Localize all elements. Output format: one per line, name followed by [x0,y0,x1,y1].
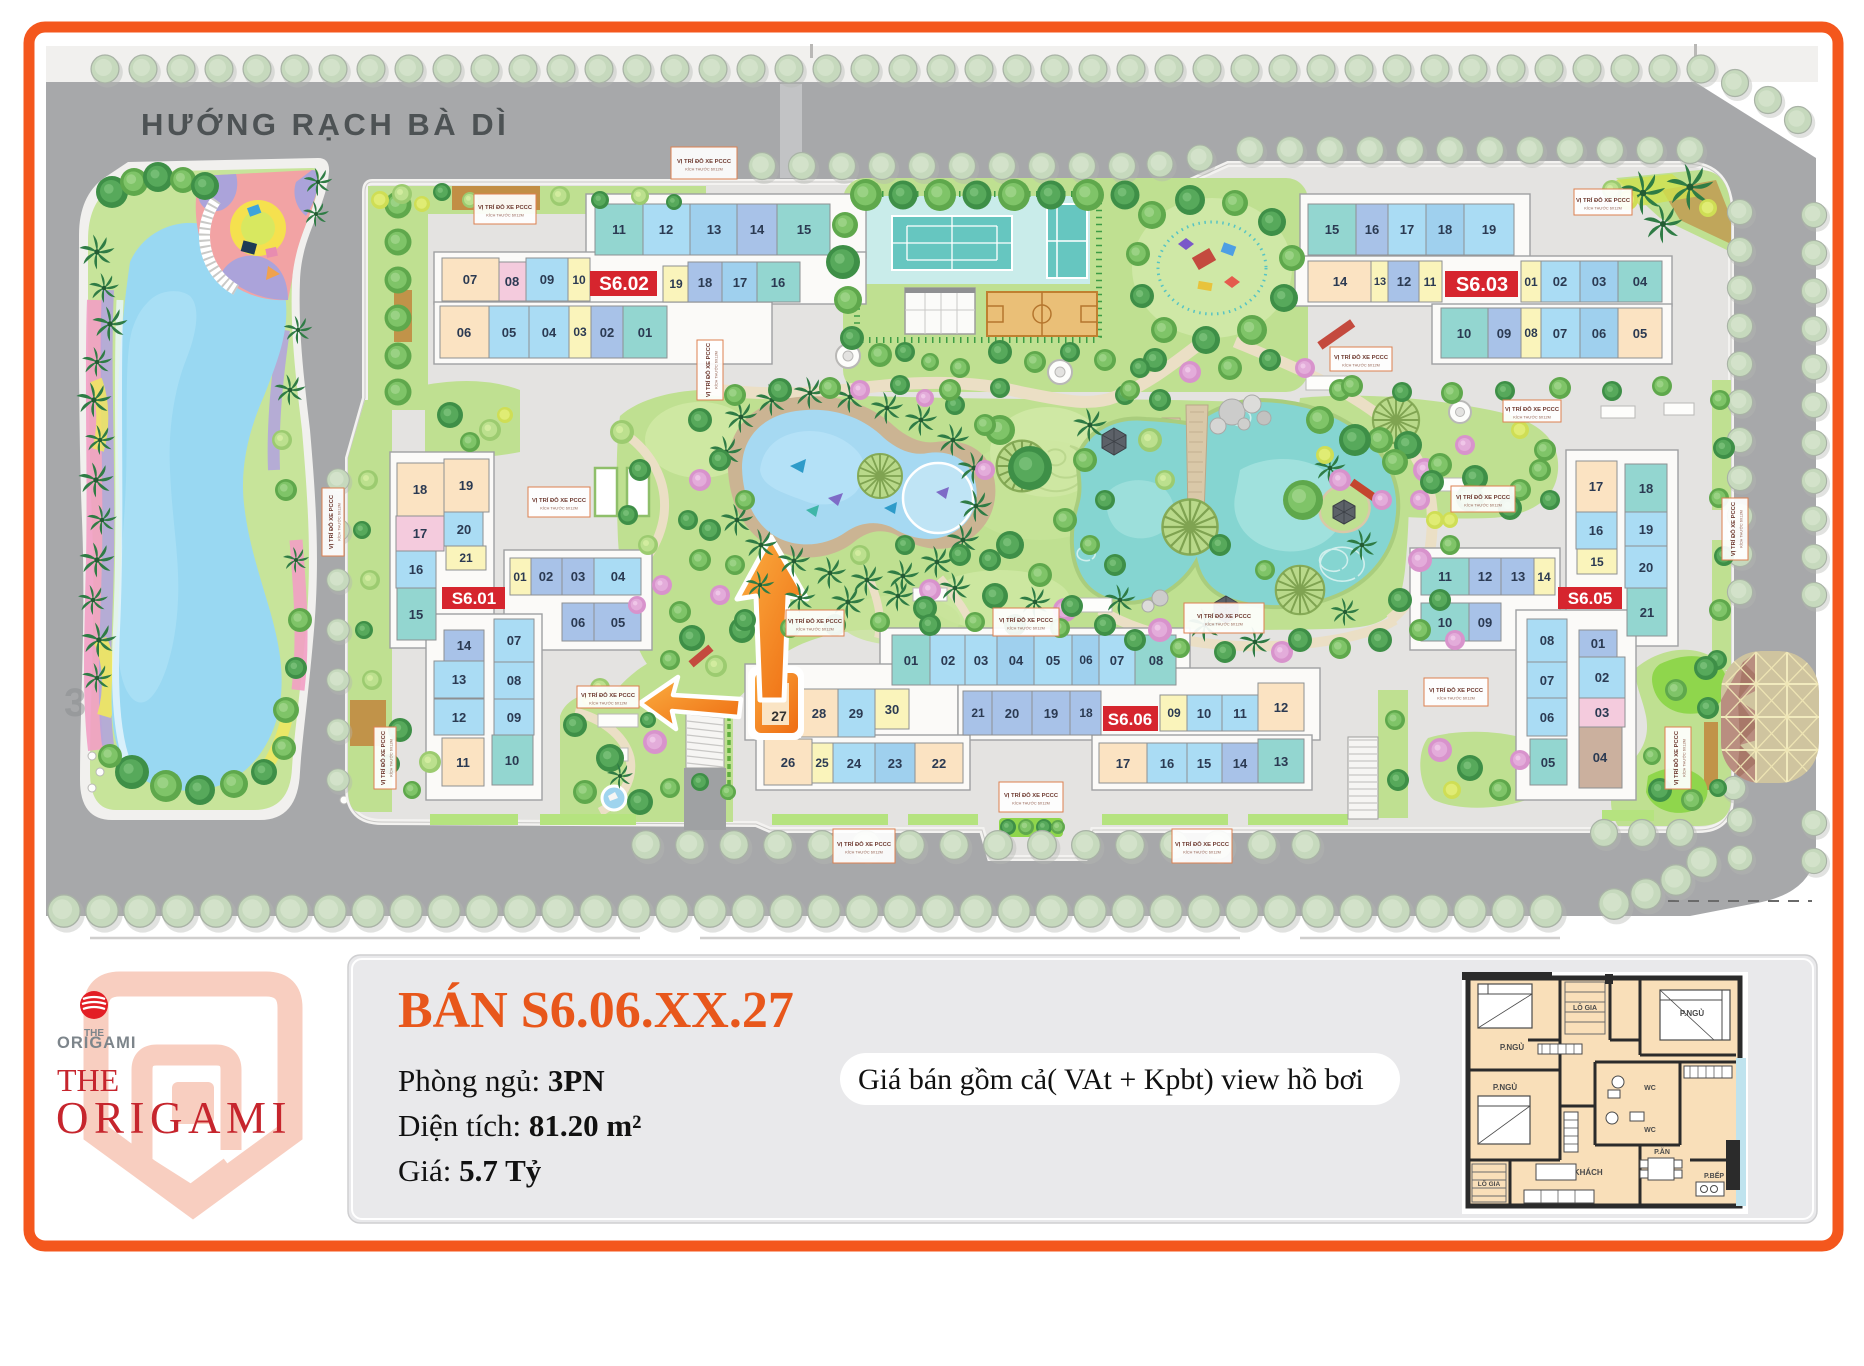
svg-text:01: 01 [1524,275,1538,289]
svg-text:16: 16 [1589,523,1603,538]
svg-text:P.NGỦ: P.NGỦ [1500,1043,1525,1052]
svg-text:02: 02 [600,325,614,340]
svg-text:KÍCH THƯỚC 6X12M: KÍCH THƯỚC 6X12M [337,503,342,540]
svg-text:KÍCH THƯỚC 6X12M: KÍCH THƯỚC 6X12M [845,850,882,855]
svg-text:Giá: 5.7 Tỷ: Giá: 5.7 Tỷ [398,1153,542,1188]
svg-text:VỊ TRÍ ĐỖ XE PCCC: VỊ TRÍ ĐỖ XE PCCC [1505,405,1560,413]
svg-text:LÔ GIA: LÔ GIA [1478,1179,1501,1188]
svg-text:03: 03 [573,325,587,339]
svg-text:01: 01 [513,570,527,584]
svg-text:VỊ TRÍ ĐỖ XE PCCC: VỊ TRÍ ĐỖ XE PCCC [327,494,335,549]
svg-text:19: 19 [1639,522,1653,537]
svg-text:01: 01 [1591,636,1605,651]
svg-text:13: 13 [1511,569,1525,584]
svg-text:KÍCH THƯỚC 6X12M: KÍCH THƯỚC 6X12M [1739,510,1744,547]
svg-text:KÍCH THƯỚC 6X12M: KÍCH THƯỚC 6X12M [1682,739,1687,776]
svg-text:Diện tích: 81.20 m²: Diện tích: 81.20 m² [398,1108,641,1143]
svg-text:19: 19 [669,277,683,291]
svg-text:04: 04 [1633,274,1648,289]
svg-text:10: 10 [1457,326,1471,341]
svg-text:KÍCH THƯỚC 6X12M: KÍCH THƯỚC 6X12M [714,351,719,388]
svg-text:14: 14 [1233,756,1248,771]
svg-text:S6.01: S6.01 [452,589,496,608]
svg-text:13: 13 [1274,754,1288,769]
svg-text:18: 18 [1079,706,1093,720]
svg-text:VỊ TRÍ ĐỖ XE PCCC: VỊ TRÍ ĐỖ XE PCCC [1576,196,1631,204]
svg-text:02: 02 [539,569,553,584]
svg-text:ORIGAMI: ORIGAMI [56,1093,292,1143]
svg-text:05: 05 [1633,326,1647,341]
svg-text:12: 12 [1397,274,1411,289]
svg-text:11: 11 [456,755,470,770]
svg-text:ORIGAMI: ORIGAMI [57,1034,136,1052]
svg-text:16: 16 [1160,756,1174,771]
svg-text:12: 12 [452,710,466,725]
svg-text:VỊ TRÍ ĐỖ XE PCCC: VỊ TRÍ ĐỖ XE PCCC [532,496,587,504]
svg-text:P.NGỦ: P.NGỦ [1493,1083,1518,1092]
svg-text:18: 18 [698,275,712,290]
svg-text:04: 04 [1009,653,1024,668]
svg-text:KÍCH THƯỚC 6X12M: KÍCH THƯỚC 6X12M [1205,622,1242,627]
svg-text:21: 21 [971,706,985,720]
svg-text:19: 19 [1482,222,1496,237]
svg-text:06: 06 [571,615,585,630]
svg-text:VỊ TRÍ ĐỖ XE PCCC: VỊ TRÍ ĐỖ XE PCCC [1197,612,1252,620]
svg-text:13: 13 [707,222,721,237]
svg-text:11: 11 [1438,569,1452,584]
svg-text:17: 17 [1589,479,1603,494]
svg-text:12: 12 [659,222,673,237]
svg-text:02: 02 [941,653,955,668]
svg-text:03: 03 [571,569,585,584]
svg-text:14: 14 [457,638,472,653]
svg-text:KÍCH THƯỚC 6X12M: KÍCH THƯỚC 6X12M [685,167,722,172]
svg-text:09: 09 [1497,326,1511,341]
svg-text:04: 04 [1593,750,1608,765]
svg-text:11: 11 [1233,706,1247,721]
svg-text:03: 03 [974,653,988,668]
svg-text:VỊ TRÍ ĐỖ XE PCCC: VỊ TRÍ ĐỖ XE PCCC [379,730,387,785]
svg-text:06: 06 [457,325,471,340]
svg-text:3: 3 [64,681,86,725]
svg-text:KÍCH THƯỚC 6X12M: KÍCH THƯỚC 6X12M [589,701,626,706]
svg-text:KÍCH THƯỚC 6X12M: KÍCH THƯỚC 6X12M [796,627,833,632]
svg-text:S6.03: S6.03 [1456,274,1508,296]
svg-text:01: 01 [638,325,652,340]
svg-text:VỊ TRÍ ĐỖ XE PCCC: VỊ TRÍ ĐỖ XE PCCC [837,840,892,848]
svg-text:04: 04 [611,569,626,584]
svg-text:S6.02: S6.02 [599,274,649,295]
svg-text:24: 24 [847,756,862,771]
svg-text:05: 05 [1046,653,1060,668]
svg-text:20: 20 [457,522,471,537]
svg-text:07: 07 [463,272,477,287]
svg-text:VỊ TRÍ ĐỖ XE PCCC: VỊ TRÍ ĐỖ XE PCCC [704,342,712,397]
svg-text:HƯỚNG RẠCH BÀ DÌ: HƯỚNG RẠCH BÀ DÌ [141,106,509,142]
svg-text:17: 17 [413,526,427,541]
svg-text:07: 07 [507,633,521,648]
svg-text:02: 02 [1553,274,1567,289]
svg-text:KÍCH THƯỚC 6X12M: KÍCH THƯỚC 6X12M [1513,415,1550,420]
svg-text:VỊ TRÍ ĐỖ XE PCCC: VỊ TRÍ ĐỖ XE PCCC [677,157,732,165]
svg-text:15: 15 [1590,555,1604,569]
svg-text:21: 21 [1640,605,1654,620]
svg-text:VỊ TRÍ ĐỖ XE PCCC: VỊ TRÍ ĐỖ XE PCCC [1672,730,1680,785]
svg-text:15: 15 [1197,756,1211,771]
svg-text:VỊ TRÍ ĐỖ XE PCCC: VỊ TRÍ ĐỖ XE PCCC [1729,501,1737,556]
svg-text:09: 09 [540,272,554,287]
svg-text:30: 30 [885,702,899,717]
svg-text:05: 05 [502,325,516,340]
svg-text:27: 27 [771,708,787,724]
svg-text:14: 14 [750,222,765,237]
svg-text:KÍCH THƯỚC 6X12M: KÍCH THƯỚC 6X12M [1342,363,1379,368]
svg-text:21: 21 [459,551,473,565]
svg-text:VỊ TRÍ ĐỖ XE PCCC: VỊ TRÍ ĐỖ XE PCCC [1334,353,1389,361]
svg-text:KÍCH THƯỚC 6X12M: KÍCH THƯỚC 6X12M [540,506,577,511]
svg-text:28: 28 [812,706,826,721]
svg-text:KÍCH THƯỚC 6X12M: KÍCH THƯỚC 6X12M [486,213,523,218]
svg-text:16: 16 [771,275,785,290]
svg-text:VỊ TRÍ ĐỖ XE PCCC: VỊ TRÍ ĐỖ XE PCCC [999,616,1054,624]
svg-text:KÍCH THƯỚC 6X12M: KÍCH THƯỚC 6X12M [389,739,394,776]
svg-text:14: 14 [1333,274,1348,289]
svg-text:08: 08 [507,673,521,688]
svg-text:18: 18 [1639,481,1653,496]
svg-text:KÍCH THƯỚC 6X12M: KÍCH THƯỚC 6X12M [1584,206,1621,211]
svg-text:VỊ TRÍ ĐỖ XE PCCC: VỊ TRÍ ĐỖ XE PCCC [478,203,533,211]
svg-text:VỊ TRÍ ĐỖ XE PCCC: VỊ TRÍ ĐỖ XE PCCC [581,691,636,699]
svg-text:16: 16 [409,562,423,577]
svg-text:KÍCH THƯỚC 6X12M: KÍCH THƯỚC 6X12M [1183,850,1220,855]
svg-text:KÍCH THƯỚC 6X12M: KÍCH THƯỚC 6X12M [1012,801,1049,806]
svg-text:S6.06: S6.06 [1108,710,1152,729]
svg-text:20: 20 [1639,560,1653,575]
svg-text:03: 03 [1595,705,1609,720]
svg-text:16: 16 [1365,222,1379,237]
svg-text:23: 23 [888,756,902,771]
svg-text:06: 06 [1592,326,1606,341]
svg-text:09: 09 [1478,615,1492,630]
svg-text:WC: WC [1644,1127,1656,1134]
svg-text:11: 11 [1424,275,1437,289]
svg-text:P.ĂN: P.ĂN [1654,1147,1670,1156]
svg-text:05: 05 [611,615,625,630]
svg-text:04: 04 [542,325,557,340]
svg-text:Giá bán gồm cả( VAt + Kpbt) vi: Giá bán gồm cả( VAt + Kpbt) view hồ bơi [858,1063,1364,1096]
svg-text:01: 01 [904,653,918,668]
svg-text:KÍCH THƯỚC 6X12M: KÍCH THƯỚC 6X12M [1464,503,1501,508]
svg-text:S6.05: S6.05 [1568,589,1612,608]
svg-text:06: 06 [1079,653,1093,667]
svg-text:18: 18 [1438,222,1452,237]
svg-text:15: 15 [797,222,811,237]
svg-text:15: 15 [1325,222,1339,237]
svg-text:08: 08 [1524,326,1538,340]
svg-text:11: 11 [612,222,626,237]
svg-text:17: 17 [1116,756,1130,771]
svg-text:07: 07 [1553,326,1567,341]
svg-text:26: 26 [781,755,795,770]
svg-text:18: 18 [413,482,427,497]
svg-text:08: 08 [1149,653,1163,668]
svg-text:VỊ TRÍ ĐỖ XE PCCC: VỊ TRÍ ĐỖ XE PCCC [1429,686,1484,694]
svg-text:14: 14 [1537,570,1551,584]
svg-text:KÍCH THƯỚC 6X12M: KÍCH THƯỚC 6X12M [1007,626,1044,631]
svg-text:BÁN S6.06.XX.27: BÁN S6.06.XX.27 [398,981,794,1039]
svg-text:KÍCH THƯỚC 6X12M: KÍCH THƯỚC 6X12M [1437,696,1474,701]
svg-text:08: 08 [505,274,519,289]
svg-text:09: 09 [507,710,521,725]
svg-text:07: 07 [1110,653,1124,668]
svg-text:19: 19 [1044,706,1058,721]
svg-text:29: 29 [849,706,863,721]
svg-text:15: 15 [409,607,423,622]
svg-text:10: 10 [1197,706,1211,721]
svg-text:05: 05 [1541,755,1555,770]
svg-text:10: 10 [1438,615,1452,630]
svg-text:19: 19 [459,478,473,493]
svg-text:13: 13 [452,672,466,687]
svg-text:VỊ TRÍ ĐỖ XE PCCC: VỊ TRÍ ĐỖ XE PCCC [1456,493,1511,501]
svg-text:VỊ TRÍ ĐỖ XE PCCC: VỊ TRÍ ĐỖ XE PCCC [1175,840,1230,848]
svg-text:13: 13 [1374,276,1386,288]
svg-text:08: 08 [1540,633,1554,648]
svg-text:Phòng ngủ: 3PN: Phòng ngủ: 3PN [398,1063,605,1098]
svg-text:25: 25 [815,756,829,770]
svg-text:17: 17 [733,275,747,290]
svg-text:02: 02 [1595,670,1609,685]
svg-text:07: 07 [1540,673,1554,688]
svg-text:WC: WC [1644,1085,1656,1092]
svg-text:10: 10 [572,273,586,287]
svg-text:10: 10 [505,753,519,768]
svg-text:LÔ GIA: LÔ GIA [1573,1003,1597,1012]
svg-text:20: 20 [1005,706,1019,721]
svg-text:12: 12 [1274,700,1288,715]
svg-text:22: 22 [932,756,946,771]
svg-text:06: 06 [1540,710,1554,725]
svg-text:17: 17 [1400,222,1414,237]
svg-text:03: 03 [1592,274,1606,289]
svg-text:VỊ TRÍ ĐỖ XE PCCC: VỊ TRÍ ĐỖ XE PCCC [1004,791,1059,799]
svg-text:P.NGỦ: P.NGỦ [1680,1009,1705,1018]
svg-text:09: 09 [1167,706,1181,720]
svg-text:VỊ TRÍ ĐỖ XE PCCC: VỊ TRÍ ĐỖ XE PCCC [788,617,843,625]
svg-text:12: 12 [1478,569,1492,584]
